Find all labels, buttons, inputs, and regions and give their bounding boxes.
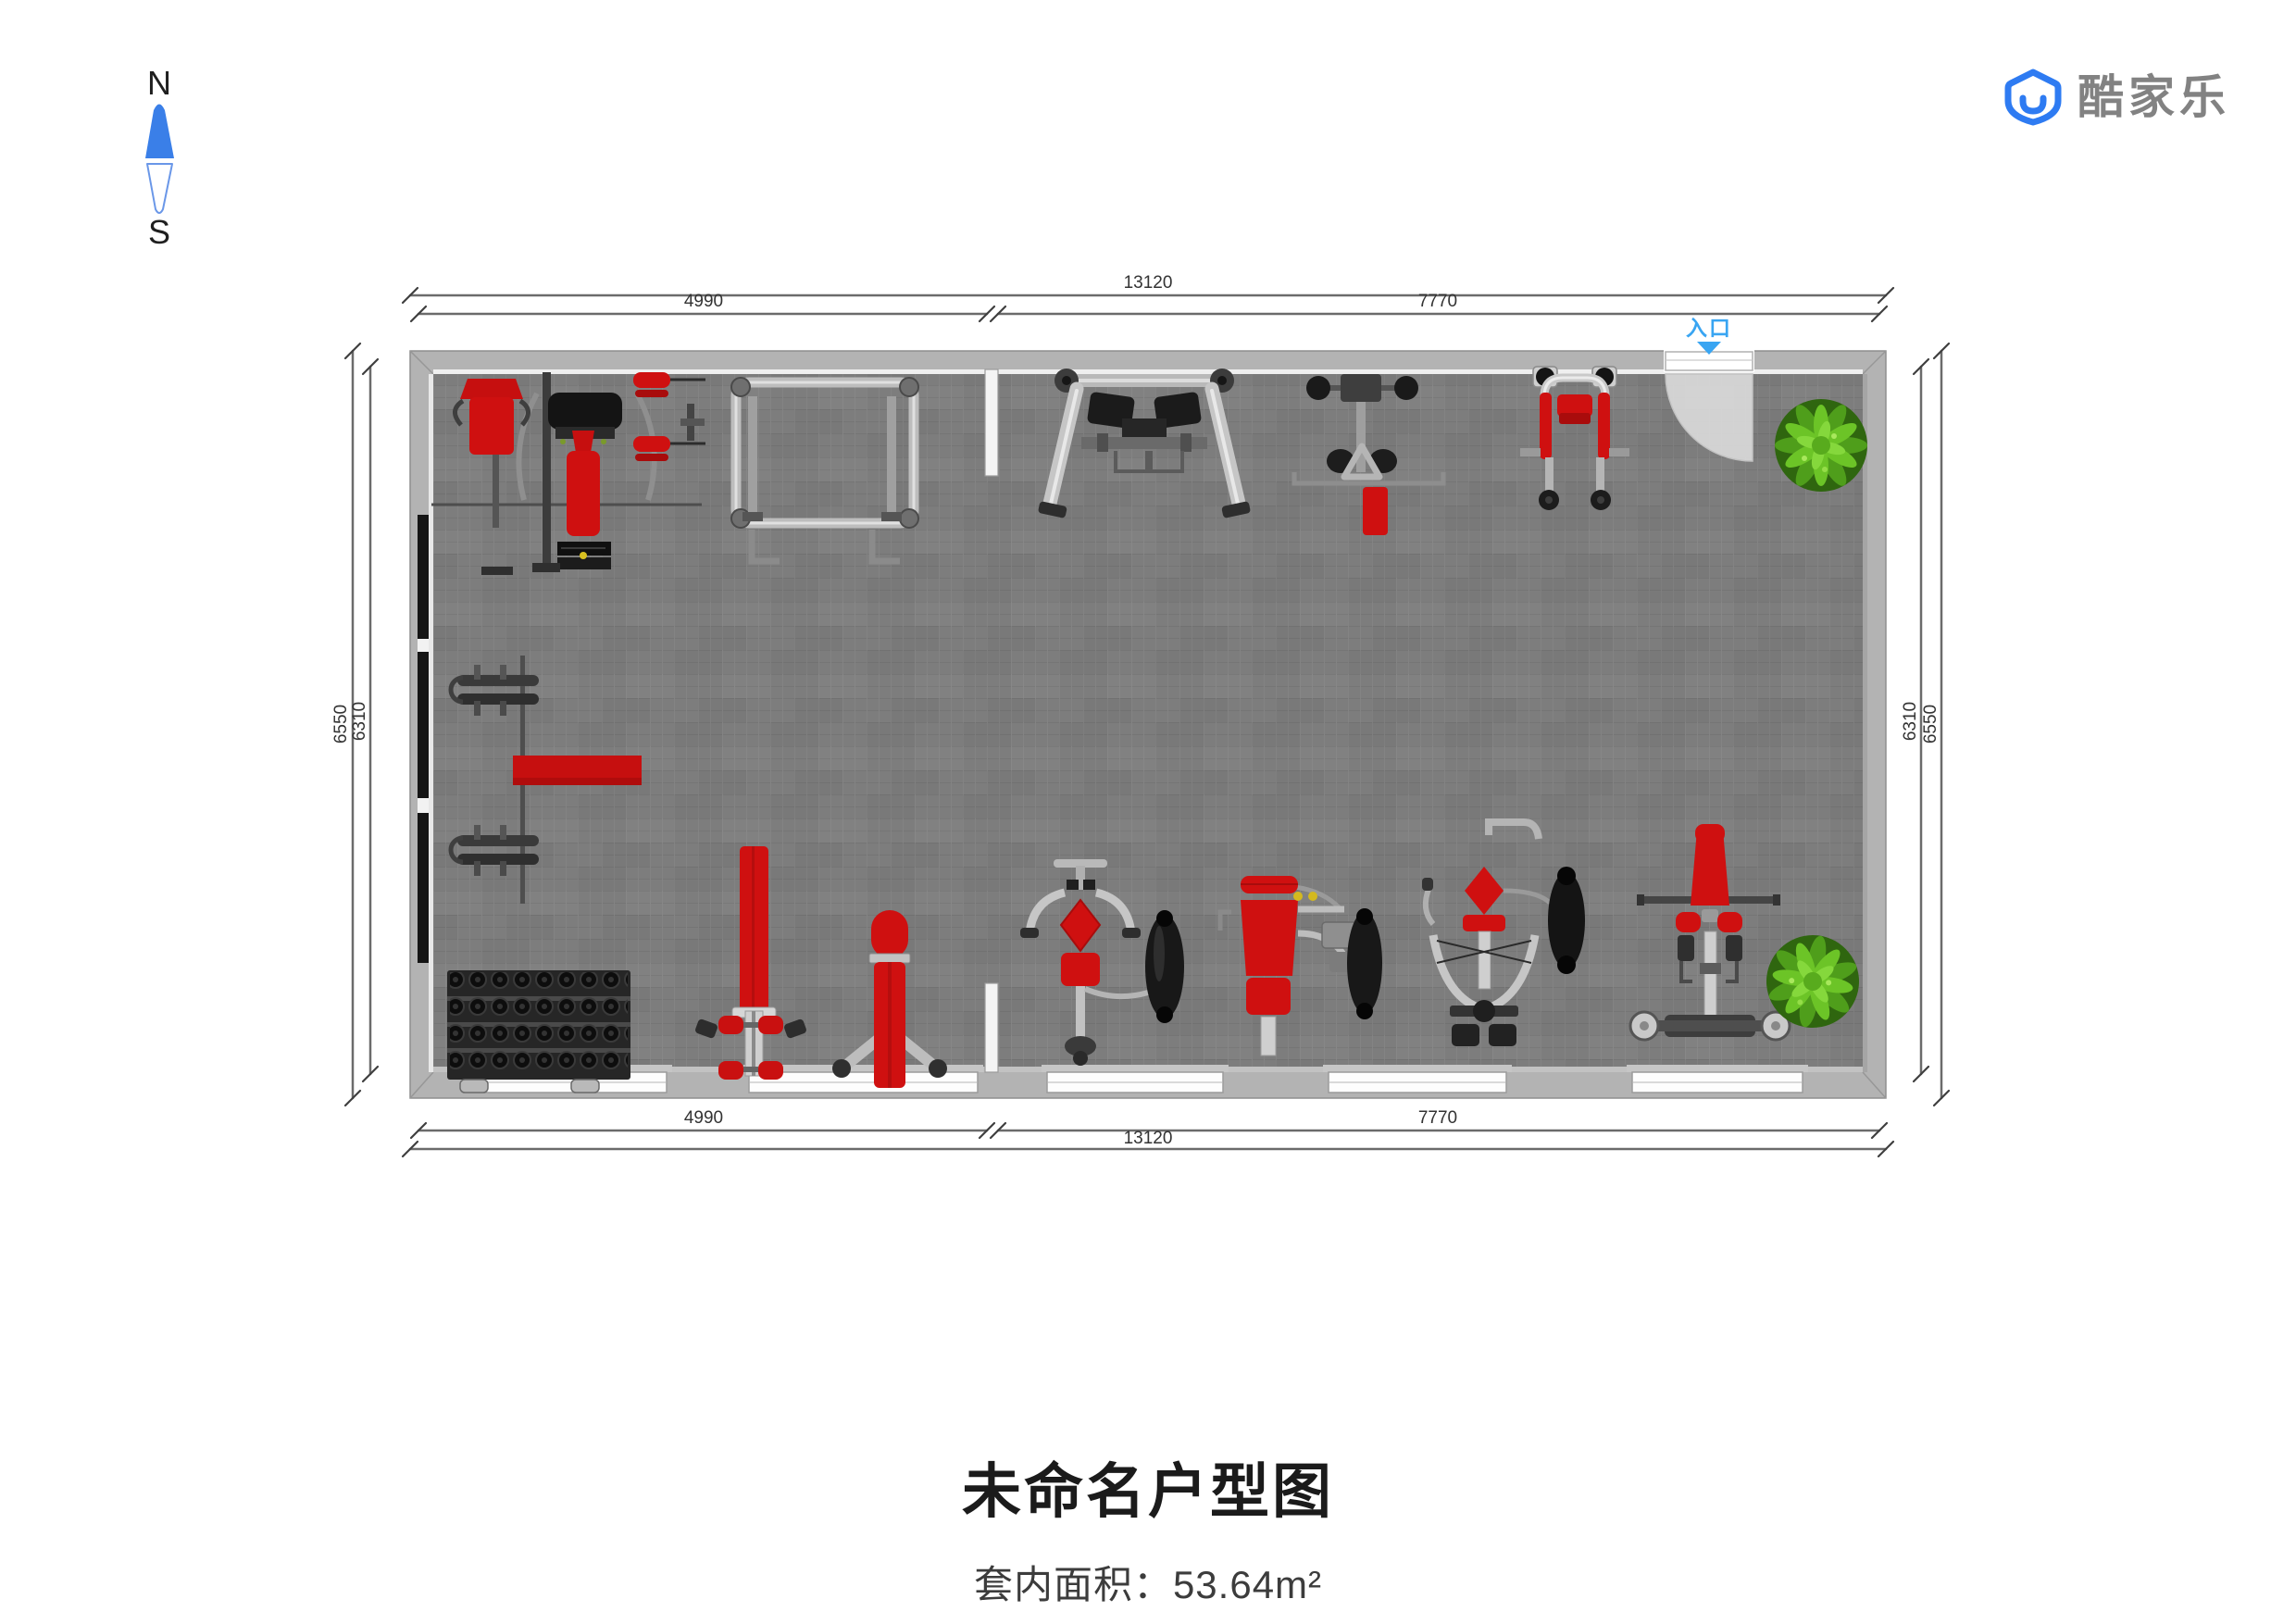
page-title: 未命名户型图 [0, 1444, 2296, 1530]
window [1042, 1065, 1229, 1093]
dimension-bottom-left-segment: 4990 [411, 1108, 994, 1138]
dim-bottom-total-label: 13120 [1124, 1129, 1173, 1148]
brand-logo: 酷家乐 [2003, 69, 2230, 126]
dim-left-outer-label: 6550 [331, 705, 351, 743]
entrance-marker: 入口 [1686, 316, 1732, 355]
potted-plant-north [1775, 399, 1867, 492]
dumbbell-rack [447, 970, 630, 1093]
window [1323, 1065, 1512, 1093]
window [1627, 1065, 1808, 1093]
dimension-top-total: 13120 [403, 273, 1893, 303]
entrance-label: 入口 [1686, 316, 1732, 340]
compass-north-label: N [147, 64, 171, 102]
floorplan-page: N S 13120 4990 7770 4990 7770 [0, 0, 2296, 1624]
dim-right-outer-label: 6550 [1921, 705, 1940, 743]
floorplan-canvas: N S 13120 4990 7770 4990 7770 [0, 0, 2296, 1624]
dim-left-inner-label: 6310 [350, 702, 369, 741]
dimension-right-outer: 6550 [1921, 344, 1949, 1106]
dimension-left-inner: 6310 [350, 359, 378, 1081]
exercise-mat [513, 756, 642, 785]
dim-bottom-left-label: 4990 [684, 1108, 723, 1128]
dimension-bottom-total: 13120 [403, 1129, 1893, 1156]
compass-north-needle-icon [145, 105, 174, 159]
interior-wall-stub-top [985, 369, 998, 476]
dim-top-right-label: 7770 [1418, 292, 1457, 311]
dim-bottom-right-label: 7770 [1418, 1108, 1457, 1128]
dim-top-total-label: 13120 [1124, 273, 1173, 293]
dim-top-left-label: 4990 [684, 292, 723, 311]
dim-right-inner-label: 6310 [1901, 702, 1920, 741]
interior-wall-stub-bottom [985, 983, 998, 1072]
brand-name: 酷家乐 [2078, 74, 2230, 120]
wall-mirror-strips [418, 515, 429, 963]
compass-south-label: S [148, 213, 170, 251]
compass-south-needle-icon [147, 164, 172, 213]
area-text: 套内面积：53.64m² [0, 1554, 2296, 1610]
compass: N S [142, 64, 178, 251]
kujiale-shield-icon [2003, 69, 2063, 126]
